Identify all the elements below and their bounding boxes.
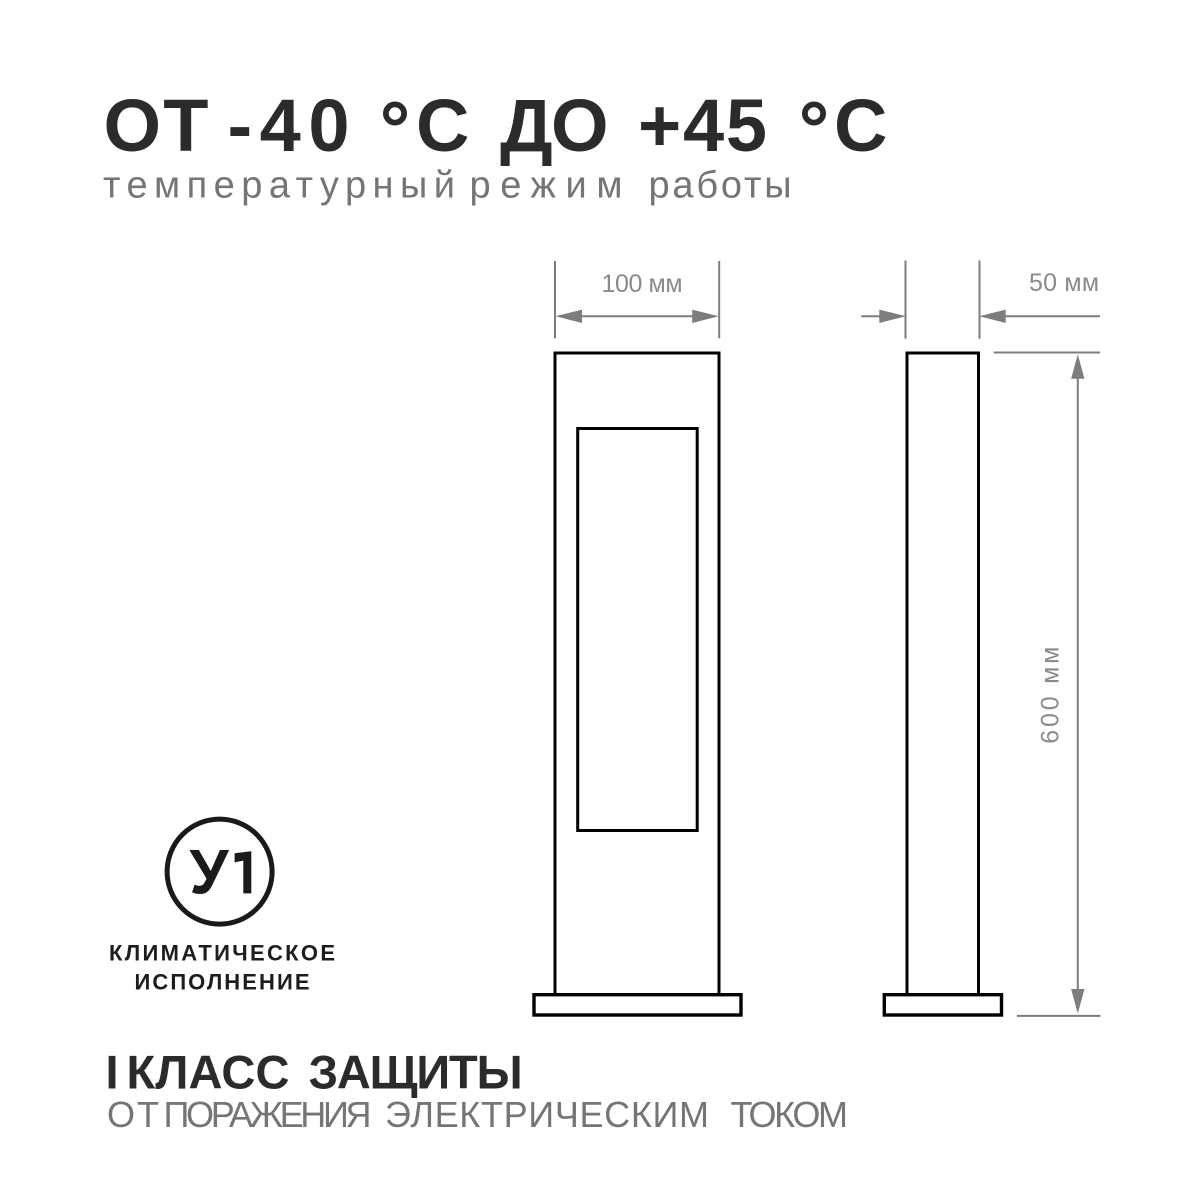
svg-text:С: С (416, 84, 469, 167)
svg-text:ОТ: ОТ (104, 84, 209, 167)
svg-text:ЗАЩИТЫ: ЗАЩИТЫ (309, 1046, 523, 1099)
svg-text:-40: -40 (228, 84, 350, 167)
svg-text:50 мм: 50 мм (1029, 269, 1099, 297)
svg-text:ТОКОМ: ТОКОМ (731, 1094, 849, 1135)
svg-text:КЛАСС: КЛАСС (127, 1046, 290, 1099)
svg-text:ДО: ДО (500, 84, 609, 167)
svg-text:100 мм: 100 мм (602, 270, 683, 298)
svg-text:У: У (189, 838, 229, 908)
svg-text:ОТ: ОТ (107, 1094, 159, 1135)
svg-text:ПОРАЖЕНИЯ: ПОРАЖЕНИЯ (164, 1094, 372, 1135)
svg-text:С: С (834, 84, 887, 167)
svg-text:ЭЛЕКТРИЧЕСКИМ: ЭЛЕКТРИЧЕСКИМ (385, 1094, 709, 1135)
svg-text:I: I (106, 1046, 119, 1099)
svg-text:ИСПОЛНЕНИЕ: ИСПОЛНЕНИЕ (135, 969, 310, 994)
svg-text:температурный: температурный (103, 165, 455, 207)
svg-text:КЛИМАТИЧЕСКОЕ: КЛИМАТИЧЕСКОЕ (109, 941, 335, 966)
svg-text:+45: +45 (638, 84, 767, 167)
